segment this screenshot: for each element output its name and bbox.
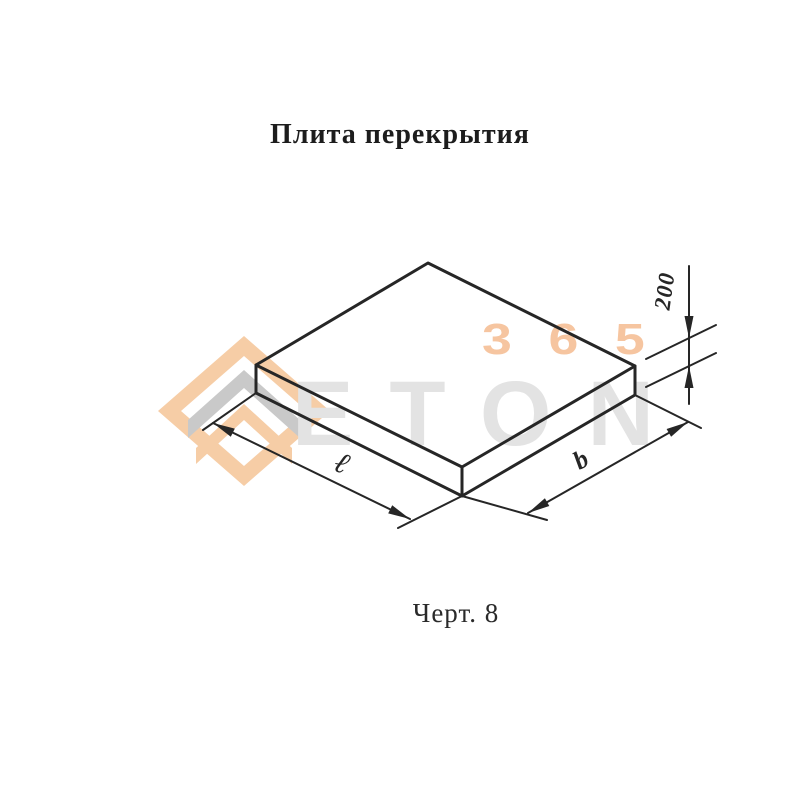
length-arrow-right [388, 505, 410, 519]
width-extension-line-right [635, 395, 701, 428]
slab-technical-drawing: ℓ b 200 [0, 0, 800, 800]
thickness-dimension-label: 200 [649, 271, 679, 313]
width-dimension-line [528, 422, 688, 513]
length-dimension-label: ℓ [329, 446, 355, 481]
length-extension-line-left [203, 393, 256, 430]
length-extension-line-right [398, 496, 462, 528]
document-page: 365 ETON [0, 0, 800, 800]
thickness-extension-line-bottom [646, 353, 716, 387]
width-dimension-label: b [568, 444, 594, 476]
dimension-lines-group [203, 266, 716, 528]
thickness-extension-line-top [646, 325, 716, 359]
width-arrow-left [528, 498, 549, 513]
thickness-arrow-bottom [685, 366, 694, 388]
length-arrow-left [213, 423, 235, 437]
length-dimension-line [213, 423, 410, 519]
slab-top-face [256, 263, 635, 467]
width-arrow-right [667, 422, 688, 437]
thickness-arrow-top [685, 316, 694, 338]
